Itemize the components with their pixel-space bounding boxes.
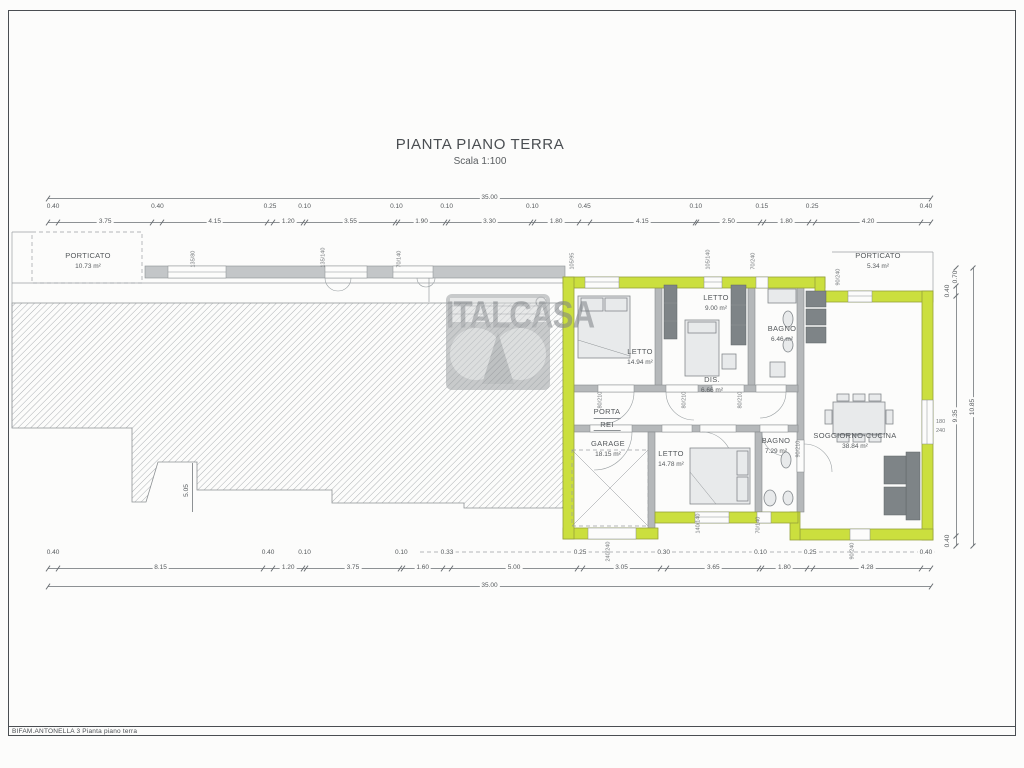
dim-segment-label: 1.60: [414, 565, 431, 572]
room-label-porticato-left: PORTICATO 10.73 m²: [65, 250, 111, 272]
opening-size-label: 140/140: [697, 514, 703, 534]
dim-segment-label: 0.40: [918, 550, 935, 557]
dim-segment-label: 0.25: [802, 550, 819, 557]
dim-segment-label: 0.10: [752, 550, 769, 557]
dim-segment-label: 0.25: [262, 204, 279, 211]
dim-segment-label: 0.33: [439, 550, 456, 557]
dim-segment-label: 3.65: [705, 565, 722, 572]
footer-title: BIFAM.ANTONELLA 3 Pianta piano terra: [12, 728, 137, 735]
existing-building-wall: [145, 266, 565, 291]
dim-segment-label: 9.35: [953, 408, 960, 425]
dim-segment-label: 0.10: [687, 204, 704, 211]
room-label-letto-nw: LETTO 14.94 m²: [627, 346, 653, 368]
opening-size-label: 70/140: [757, 517, 763, 534]
dim-total-label: 10.85: [970, 397, 977, 417]
door-size-label: 80/210: [683, 392, 689, 409]
kitchen-units-icon: [806, 291, 826, 343]
bed-icon: [690, 448, 750, 504]
dim-segment-label: 4.15: [634, 219, 651, 226]
dim-segment-label: 0.10: [438, 204, 455, 211]
dim-segment-label: 4.15: [206, 219, 223, 226]
opening-size-label: 135/140: [322, 248, 328, 268]
dim-segment-label: 0.15: [753, 204, 770, 211]
room-label-disimpegno: DIS. 6.66 m²: [701, 374, 723, 396]
dim-segment-label: 4.28: [859, 565, 876, 572]
dim-segment-label: 1.80: [778, 219, 795, 226]
room-label-letto-n: LETTO 9.00 m²: [703, 292, 729, 314]
dim-segment-label: 0.40: [149, 204, 166, 211]
dim-segment-label: 0.25: [572, 550, 589, 557]
dim-chain-right: 10.850.700.409.350.40: [946, 268, 980, 546]
room-label-letto-s: LETTO 14.78 m²: [658, 448, 684, 470]
dim-segment-label: 3.05: [613, 565, 630, 572]
room-label-soggiorno: SOGGIORNO-CUCINA 38.84 m²: [813, 430, 896, 452]
dim-total-label: 35.00: [479, 583, 499, 590]
dim-segment-label: 3.30: [481, 219, 498, 226]
bathroom-fixtures-icon: [764, 452, 793, 506]
footer-divider: [8, 726, 1016, 727]
door-size-label: 80/210: [599, 392, 605, 409]
watermark: ITALCASA: [438, 292, 602, 333]
watermark-brand-text: ITALCASA: [445, 294, 596, 338]
dim-segment-label: 2.50: [720, 219, 737, 226]
dim-segment-label: 0.10: [296, 204, 313, 211]
opening-size-label: 105/140: [707, 250, 713, 270]
dim-segment-label: 8.15: [152, 565, 169, 572]
dim-total-label: 35.00: [479, 195, 499, 202]
room-label-porta-rei: PORTA REI: [594, 406, 621, 431]
dim-segment-label: 0.25: [804, 204, 821, 211]
dim-chain-top: 35.000.403.750.404.150.251.200.103.550.1…: [48, 192, 931, 226]
dim-segment-label: 3.75: [345, 565, 362, 572]
dim-segment-label: 1.20: [280, 565, 297, 572]
dim-segment-label: 0.40: [945, 533, 952, 550]
opening-size-label: 135/80: [192, 251, 198, 268]
bed-icon: [685, 320, 736, 376]
dim-segment-label: 0.45: [576, 204, 593, 211]
opening-size-label: 240/240: [607, 542, 613, 562]
dim-segment-label: 0.10: [393, 550, 410, 557]
dim-segment-label: 1.80: [548, 219, 565, 226]
dim-segment-label: 0.10: [524, 204, 541, 211]
dim-chain-bottom: 35.000.408.150.401.200.103.750.101.600.3…: [48, 548, 931, 590]
dim-segment-label: 3.55: [342, 219, 359, 226]
room-label-bagno-s: BAGNO 7.29 m²: [762, 435, 791, 457]
dim-segment-label: 1.20: [280, 219, 297, 226]
opening-size-label: 240: [936, 429, 945, 435]
opening-size-label: 90/240: [837, 269, 843, 286]
dim-left-wing-label: 5.05: [183, 482, 190, 499]
opening-size-label: 105/95: [571, 253, 577, 270]
garage-area-marking: [572, 450, 648, 526]
dim-segment-label: 5.00: [506, 565, 523, 572]
dim-segment-label: 0.30: [655, 550, 672, 557]
dim-segment-label: 4.20: [860, 219, 877, 226]
opening-size-label: 70/240: [752, 253, 758, 270]
door-size-label: 90/210: [797, 441, 803, 458]
opening-size-label: 90/240: [851, 543, 857, 560]
dim-segment-label: 0.40: [918, 204, 935, 211]
opening-size-label: 180: [936, 420, 945, 426]
sofa-icon: [884, 452, 920, 520]
room-label-porticato-right: PORTICATO 5.34 m²: [855, 250, 901, 272]
dim-segment-label: 0.40: [45, 550, 62, 557]
dim-left-wing-line: [192, 463, 193, 512]
room-label-garage: GARAGE 18.15 m²: [591, 438, 625, 460]
floor-plan-page: PIANTA PIANO TERRA Scala 1:100: [0, 0, 1024, 768]
dim-segment-label: 0.10: [296, 550, 313, 557]
dim-segment-label: 1.90: [413, 219, 430, 226]
dim-segment-label: 0.40: [945, 283, 952, 300]
dim-segment-label: 3.75: [97, 219, 114, 226]
dim-segment-label: 1.80: [776, 565, 793, 572]
door-size-label: 80/210: [739, 392, 745, 409]
dim-segment-label: 0.10: [388, 204, 405, 211]
dim-segment-label: 0.40: [45, 204, 62, 211]
room-label-bagno-n: BAGNO 6.46 m²: [768, 323, 797, 345]
opening-size-label: 70/140: [398, 251, 404, 268]
dim-segment-label: 0.40: [260, 550, 277, 557]
